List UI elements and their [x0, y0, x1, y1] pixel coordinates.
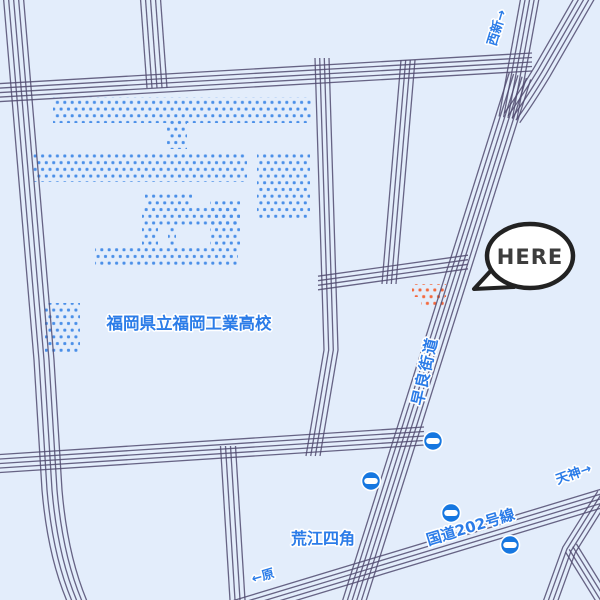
- building-block: [168, 225, 176, 248]
- map-canvas: 福岡県立福岡工業高校 西新→ 早良街道 天神→ 国道202号線 荒江四角 ←原 …: [0, 0, 600, 600]
- building-block: [257, 152, 310, 220]
- building-block: [167, 122, 187, 149]
- traffic-light-icon: [424, 432, 443, 451]
- traffic-light-icon: [501, 536, 520, 555]
- building-block: [145, 192, 192, 205]
- building-block: [53, 97, 311, 123]
- building-block: [33, 152, 247, 182]
- here-label: HERE: [497, 245, 563, 269]
- label-school: 福岡県立福岡工業高校: [106, 313, 273, 333]
- access-map: 福岡県立福岡工業高校 西新→ 早良街道 天神→ 国道202号線 荒江四角 ←原 …: [0, 0, 600, 600]
- label-intersection-arae-yonkado: 荒江四角: [290, 529, 355, 548]
- traffic-light-icon: [442, 504, 461, 523]
- traffic-light-icon: [362, 472, 381, 491]
- building-block: [142, 225, 158, 248]
- building-block: [210, 200, 240, 248]
- building-block: [95, 248, 238, 268]
